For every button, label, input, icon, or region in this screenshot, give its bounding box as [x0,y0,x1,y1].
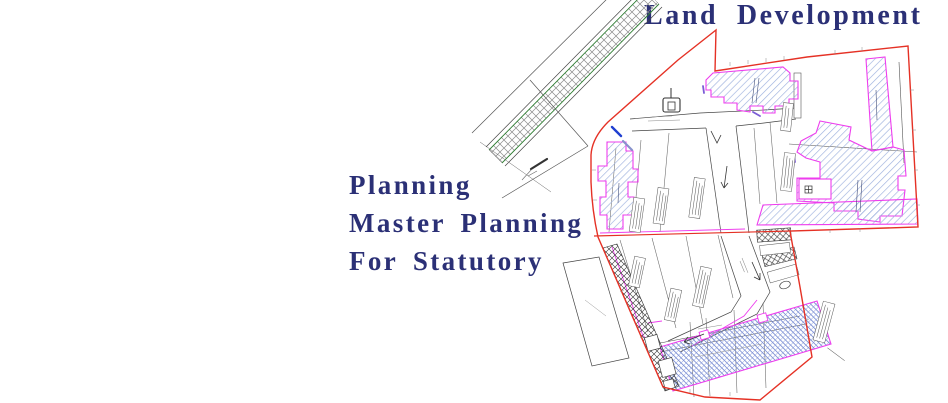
site-plan-drawing [0,0,948,403]
parking-strip-right-1 [757,228,792,242]
building-tall-block [866,57,893,151]
paved-crossing-strip [489,0,659,163]
page: Land Development Planning Master Plannin… [0,0,948,403]
flow-arrows [684,131,760,344]
proposed-buildings [598,57,918,229]
hatched-strip [757,199,918,225]
gate-house [663,88,680,112]
survey-mark [531,159,547,169]
